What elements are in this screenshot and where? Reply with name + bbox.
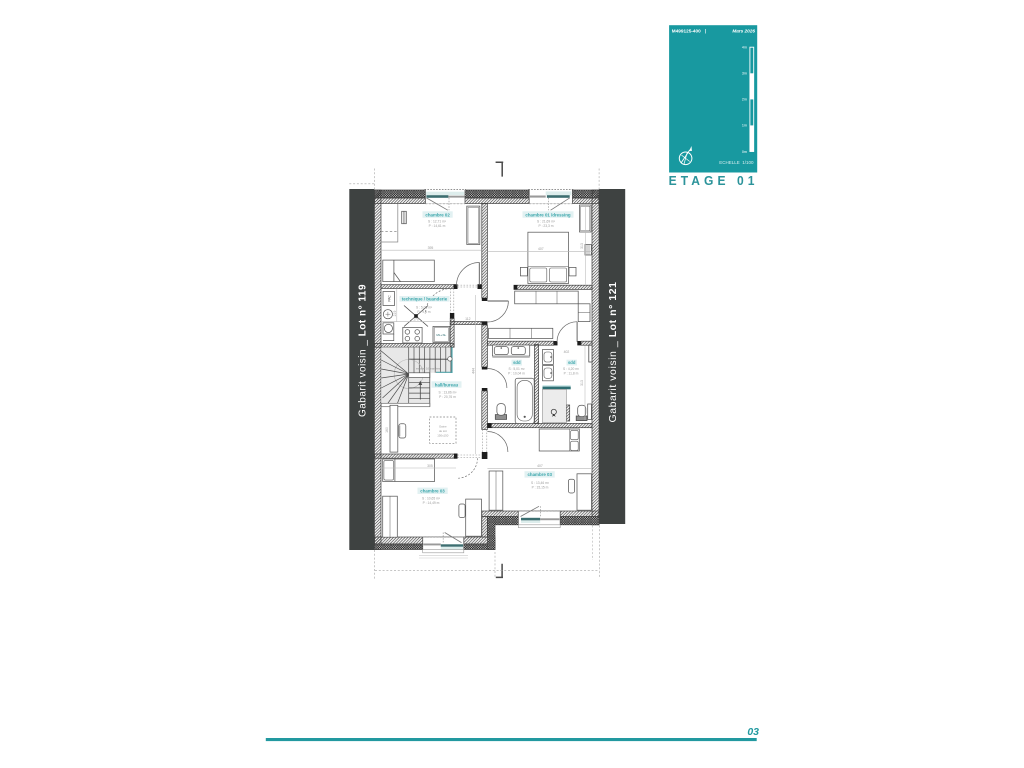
svg-text:407: 407 — [538, 247, 544, 251]
svg-text:ML+SL: ML+SL — [436, 333, 446, 337]
svg-text:hall/bureau: hall/bureau — [435, 382, 459, 387]
svg-text:S : 4,20 m²: S : 4,20 m² — [563, 367, 580, 371]
svg-text:160: 160 — [385, 427, 389, 433]
svg-text:Gabarit voisin _ Lot n° 121: Gabarit voisin _ Lot n° 121 — [607, 281, 619, 422]
svg-text:chambre 01 /dressing: chambre 01 /dressing — [525, 212, 570, 217]
svg-text:444: 444 — [471, 368, 475, 374]
svg-text:P : 20,76 m: P : 20,76 m — [439, 395, 456, 399]
svg-text:S : 12,71 m²: S : 12,71 m² — [428, 220, 447, 224]
svg-text:S : 5,08 m²: S : 5,08 m² — [416, 306, 433, 310]
svg-text:150x150: 150x150 — [437, 433, 448, 437]
svg-text:S : 5,01 m²: S : 5,01 m² — [508, 367, 525, 371]
svg-text:S : 10,65 m²: S : 10,65 m² — [422, 497, 441, 501]
svg-text:P : 10,04 m: P : 10,04 m — [508, 372, 525, 376]
svg-text:technique / buanderie: technique / buanderie — [402, 297, 448, 302]
svg-text:219: 219 — [393, 311, 397, 317]
svg-text:chambre 03: chambre 03 — [420, 489, 445, 494]
svg-text:ECHELLE 1/100: ECHELLE 1/100 — [719, 160, 754, 165]
svg-text:313: 313 — [580, 243, 584, 249]
svg-text:P : 9,5 m: P : 9,5 m — [417, 310, 430, 314]
svg-text:Mars 2026: Mars 2026 — [732, 29, 755, 34]
svg-text:402: 402 — [564, 350, 570, 354]
svg-text:0m: 0m — [742, 150, 747, 154]
svg-text:395: 395 — [428, 246, 434, 250]
svg-text:313: 313 — [580, 380, 584, 386]
svg-text:P : 11,8 m: P : 11,8 m — [564, 372, 579, 376]
svg-text:S : 13,86 m²: S : 13,86 m² — [439, 390, 458, 394]
svg-text:P : 14,49 m: P : 14,49 m — [423, 501, 440, 505]
svg-text:sdd: sdd — [568, 360, 576, 365]
svg-text:3m: 3m — [742, 72, 747, 76]
svg-text:P : 14,61 m: P : 14,61 m — [429, 224, 446, 228]
svg-text:ETAGE 01: ETAGE 01 — [669, 173, 759, 188]
svg-text:PAC: PAC — [387, 295, 391, 302]
svg-text:305: 305 — [427, 464, 433, 468]
svg-text:407: 407 — [537, 464, 543, 468]
svg-text:Gaine: Gaine — [439, 424, 447, 428]
svg-text:P : 23,3 m: P : 23,3 m — [539, 224, 554, 228]
svg-text:chambre 02: chambre 02 — [425, 212, 450, 217]
svg-text:Gabarit voisin _ Lot n° 119: Gabarit voisin _ Lot n° 119 — [357, 284, 368, 417]
svg-text:03: 03 — [747, 726, 759, 738]
svg-text:S : 13,46 m²: S : 13,46 m² — [531, 481, 550, 485]
svg-text:S : 21,69 m²: S : 21,69 m² — [537, 220, 556, 224]
svg-text:escalier 16 marches: escalier 16 marches — [416, 367, 441, 371]
svg-text:sdd: sdd — [513, 360, 521, 365]
svg-text:112: 112 — [465, 317, 471, 321]
svg-text:170: 170 — [413, 318, 419, 322]
svg-text:P : 15,15 m: P : 15,15 m — [532, 486, 549, 490]
svg-text:M499125-400 |: M499125-400 | — [672, 29, 706, 34]
svg-text:de toit: de toit — [439, 429, 447, 433]
svg-text:4m: 4m — [742, 45, 747, 49]
svg-text:2m: 2m — [742, 98, 747, 102]
svg-text:1m: 1m — [742, 124, 747, 128]
svg-text:chambre 03: chambre 03 — [527, 472, 552, 477]
